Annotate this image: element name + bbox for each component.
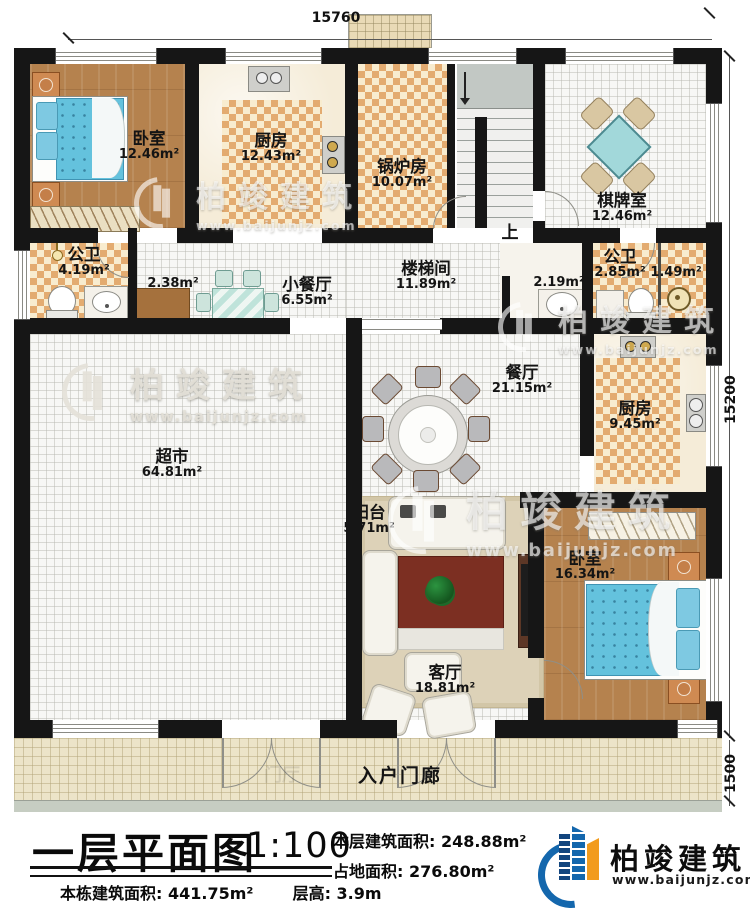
wall-exterior-bottom bbox=[320, 720, 397, 738]
total-area-row: 本栋建筑面积: 441.75m² 层高: 3.9m bbox=[60, 880, 382, 904]
dimension-tick bbox=[703, 7, 715, 19]
lazy-susan bbox=[420, 427, 436, 443]
sink-icon bbox=[248, 66, 290, 92]
dimension-side: 15200 bbox=[723, 368, 739, 432]
floor-porch bbox=[14, 738, 722, 800]
window bbox=[706, 365, 722, 467]
nightstand bbox=[32, 182, 60, 208]
sink-bowl-icon bbox=[689, 414, 703, 428]
window bbox=[14, 250, 30, 320]
armchair bbox=[421, 690, 478, 740]
door-leaf bbox=[222, 738, 224, 787]
wall-exterior-bottom bbox=[14, 720, 52, 738]
floor-lamp-center bbox=[675, 295, 680, 300]
sofa-cushion bbox=[400, 505, 416, 518]
stair-direction-arrow bbox=[464, 72, 466, 100]
floor-area-row: 本层建筑面积: 248.88m² bbox=[333, 828, 526, 852]
chair bbox=[215, 270, 233, 287]
dimension-porch: 1500 bbox=[723, 752, 739, 796]
plant-icon bbox=[426, 576, 454, 604]
pillow bbox=[676, 630, 700, 670]
bed-sheet-fold bbox=[648, 582, 679, 676]
wall-interior bbox=[656, 228, 722, 243]
wall-interior bbox=[177, 228, 233, 243]
wall-interior bbox=[185, 64, 199, 228]
stair-arrowhead-icon bbox=[460, 98, 470, 110]
wardrobe bbox=[588, 512, 696, 540]
dimension-tick bbox=[62, 32, 74, 44]
window bbox=[225, 48, 322, 64]
wall-interior bbox=[580, 334, 594, 456]
logo-building-icon bbox=[572, 826, 585, 880]
wall-interior bbox=[346, 318, 362, 720]
stove-icon bbox=[322, 136, 345, 174]
chair bbox=[362, 416, 384, 442]
window bbox=[706, 578, 722, 702]
land-area-row: 占地面积: 276.80m² bbox=[333, 858, 494, 882]
rug-kitchen1 bbox=[222, 100, 322, 224]
chair bbox=[468, 416, 490, 442]
stove-icon bbox=[620, 336, 656, 358]
window bbox=[52, 720, 159, 738]
window bbox=[428, 48, 517, 64]
dimension-line-top bbox=[68, 39, 712, 40]
wall-exterior-bottom bbox=[495, 720, 677, 738]
company-logo: 柏竣建筑 www.baijunjz.com bbox=[538, 818, 738, 904]
wall-partition bbox=[658, 243, 661, 318]
wall-interior bbox=[520, 492, 722, 508]
nightstand bbox=[668, 552, 700, 582]
pass-through-sill bbox=[362, 319, 442, 330]
door-leaf bbox=[494, 738, 496, 787]
wall-exterior-left bbox=[14, 48, 30, 738]
sofa-cushion bbox=[430, 505, 446, 518]
chair bbox=[264, 293, 279, 312]
sink-bowl-icon bbox=[689, 398, 703, 412]
wall-interior bbox=[322, 228, 358, 243]
stair-stringer-wall bbox=[475, 117, 487, 228]
wall-interior bbox=[345, 64, 358, 228]
wall-interior bbox=[14, 318, 290, 334]
door-leaf bbox=[319, 738, 321, 787]
coffee-table bbox=[404, 652, 462, 692]
logo-building-icon bbox=[559, 834, 570, 880]
wall-interior bbox=[440, 318, 722, 334]
pillow bbox=[676, 588, 700, 628]
wall-interior bbox=[528, 698, 544, 720]
washing-machine-icon bbox=[596, 290, 624, 320]
floor-stair-hall bbox=[346, 243, 500, 318]
window bbox=[55, 48, 157, 64]
rug-band bbox=[398, 628, 504, 650]
bed-sheet-fold bbox=[92, 98, 125, 178]
floor-boiler bbox=[358, 64, 447, 228]
door-leaf bbox=[397, 738, 399, 787]
window bbox=[677, 720, 718, 738]
logo-building-icon bbox=[587, 838, 599, 880]
pillow bbox=[36, 102, 58, 130]
tv-icon bbox=[521, 564, 528, 636]
window bbox=[565, 48, 674, 64]
floor-plan-sheet: 卧室 12.46m² 厨房 12.43m² 锅炉房 10.07m² 棋牌室 12… bbox=[0, 0, 750, 908]
sofa bbox=[362, 550, 398, 656]
wall-interior bbox=[533, 64, 545, 191]
title-underline bbox=[30, 866, 332, 877]
sink-bowl-icon bbox=[256, 72, 268, 84]
dimension-top: 15760 bbox=[296, 10, 376, 26]
company-url: www.baijunjz.com bbox=[612, 872, 750, 887]
ceiling-lamp-icon bbox=[52, 250, 63, 261]
storage-cabinet bbox=[132, 288, 190, 320]
wall-interior bbox=[14, 228, 98, 243]
sink-icon bbox=[546, 292, 578, 317]
floor-market bbox=[30, 334, 346, 720]
title-block: 一层平面图 1:100 本栋建筑面积: 441.75m² 层高: 3.9m 本层… bbox=[0, 812, 750, 908]
sink-bowl-icon bbox=[270, 72, 282, 84]
pillow bbox=[36, 132, 58, 160]
chair bbox=[196, 293, 211, 312]
sink-icon bbox=[92, 291, 121, 313]
wall-interior bbox=[358, 228, 433, 243]
wall-interior bbox=[528, 508, 544, 658]
chair bbox=[415, 366, 441, 388]
nightstand bbox=[32, 72, 60, 98]
rug-kitchen2 bbox=[596, 358, 680, 484]
window bbox=[706, 103, 722, 223]
chair bbox=[243, 270, 261, 287]
logo-swoosh-icon bbox=[525, 829, 618, 908]
stair-treads bbox=[457, 108, 533, 228]
dining-table-small bbox=[212, 288, 264, 322]
wall-interior bbox=[582, 240, 593, 318]
chair bbox=[413, 470, 439, 492]
wall-interior bbox=[533, 228, 620, 243]
wall-interior bbox=[128, 228, 137, 318]
wall-interior bbox=[502, 276, 510, 318]
wall-exterior-bottom bbox=[157, 720, 222, 738]
